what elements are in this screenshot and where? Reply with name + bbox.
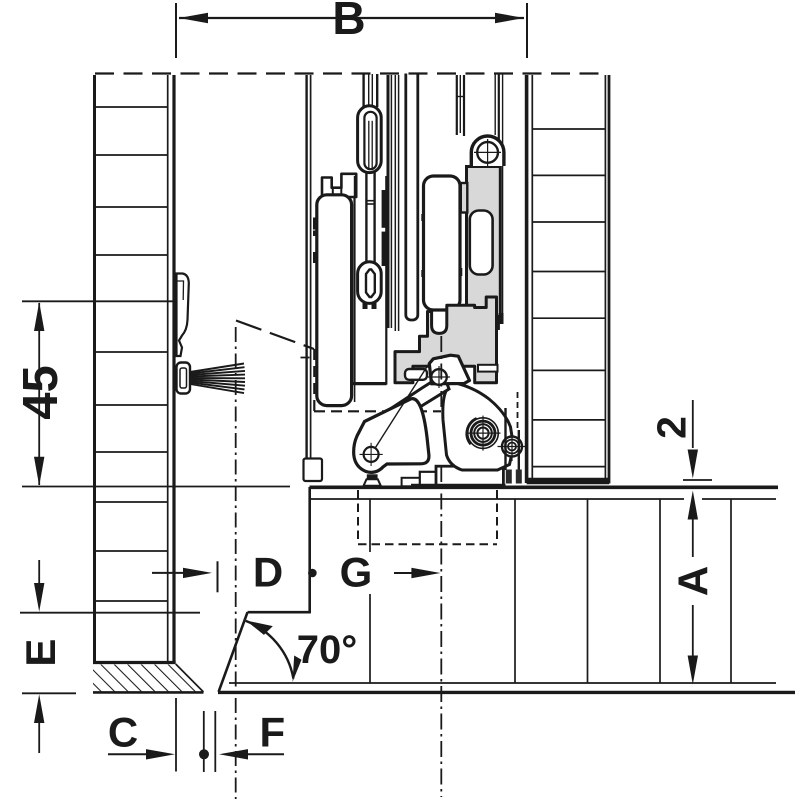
svg-text:45: 45 <box>14 365 68 420</box>
svg-text:F: F <box>259 708 285 755</box>
svg-text:D: D <box>253 549 283 596</box>
svg-text:G: G <box>340 549 373 596</box>
svg-text:A: A <box>669 566 716 596</box>
svg-text:70°: 70° <box>297 628 358 672</box>
svg-text:C: C <box>108 708 138 755</box>
svg-text:2: 2 <box>649 416 695 439</box>
svg-text:E: E <box>17 639 64 667</box>
svg-text:B: B <box>332 0 365 44</box>
